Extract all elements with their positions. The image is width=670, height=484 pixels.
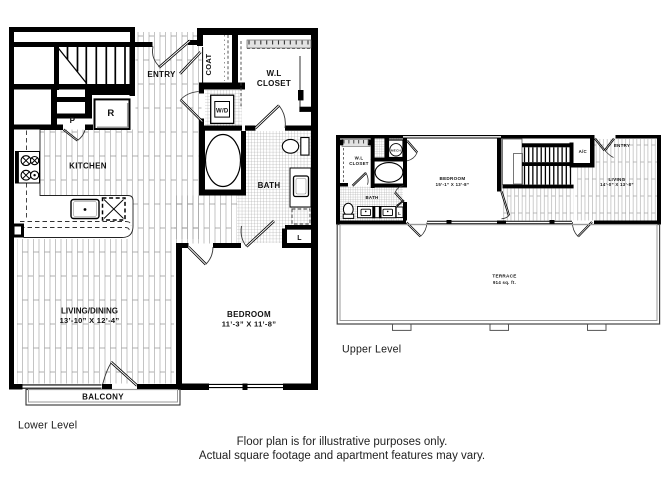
svg-text:CLOSET: CLOSET xyxy=(257,79,291,88)
svg-text:COAT: COAT xyxy=(204,53,213,75)
svg-text:KITCHEN: KITCHEN xyxy=(69,162,107,171)
svg-text:P: P xyxy=(70,116,76,125)
svg-text:BEDROOM: BEDROOM xyxy=(439,176,465,181)
svg-text:LIVING/DINING: LIVING/DINING xyxy=(61,307,118,316)
svg-text:Actual square footage and apar: Actual square footage and apartment feat… xyxy=(199,450,485,462)
svg-text:W.L: W.L xyxy=(355,156,364,161)
svg-text:BALCONY: BALCONY xyxy=(82,393,124,402)
svg-text:914 sq. ft.: 914 sq. ft. xyxy=(493,280,516,285)
svg-text:Upper Level: Upper Level xyxy=(342,344,401,356)
svg-text:R: R xyxy=(107,108,114,119)
svg-text:MECH: MECH xyxy=(391,148,401,152)
svg-text:A/C: A/C xyxy=(579,149,588,154)
svg-text:14’-0” X 13’-8”: 14’-0” X 13’-8” xyxy=(600,182,634,187)
svg-text:Floor plan is for illustrative: Floor plan is for illustrative purposes … xyxy=(237,436,448,448)
svg-text:W.L: W.L xyxy=(266,69,281,78)
svg-text:TERRACE: TERRACE xyxy=(492,274,516,279)
svg-text:L: L xyxy=(398,211,401,216)
svg-text:15’-1” X 13’-8”: 15’-1” X 13’-8” xyxy=(436,182,470,187)
svg-text:L: L xyxy=(297,235,302,242)
svg-text:CLOSET: CLOSET xyxy=(349,161,369,166)
svg-text:W/D: W/D xyxy=(216,109,229,115)
svg-text:BATH: BATH xyxy=(365,195,378,200)
svg-text:13’-10” X 12’-4”: 13’-10” X 12’-4” xyxy=(60,316,120,325)
svg-text:ENTRY: ENTRY xyxy=(147,70,176,79)
svg-text:ENTRY: ENTRY xyxy=(614,143,630,148)
svg-text:Lower Level: Lower Level xyxy=(18,420,77,432)
svg-text:BEDROOM: BEDROOM xyxy=(227,310,271,319)
svg-text:11’-3” X 11’-8”: 11’-3” X 11’-8” xyxy=(222,320,277,329)
svg-text:BATH: BATH xyxy=(258,181,281,190)
